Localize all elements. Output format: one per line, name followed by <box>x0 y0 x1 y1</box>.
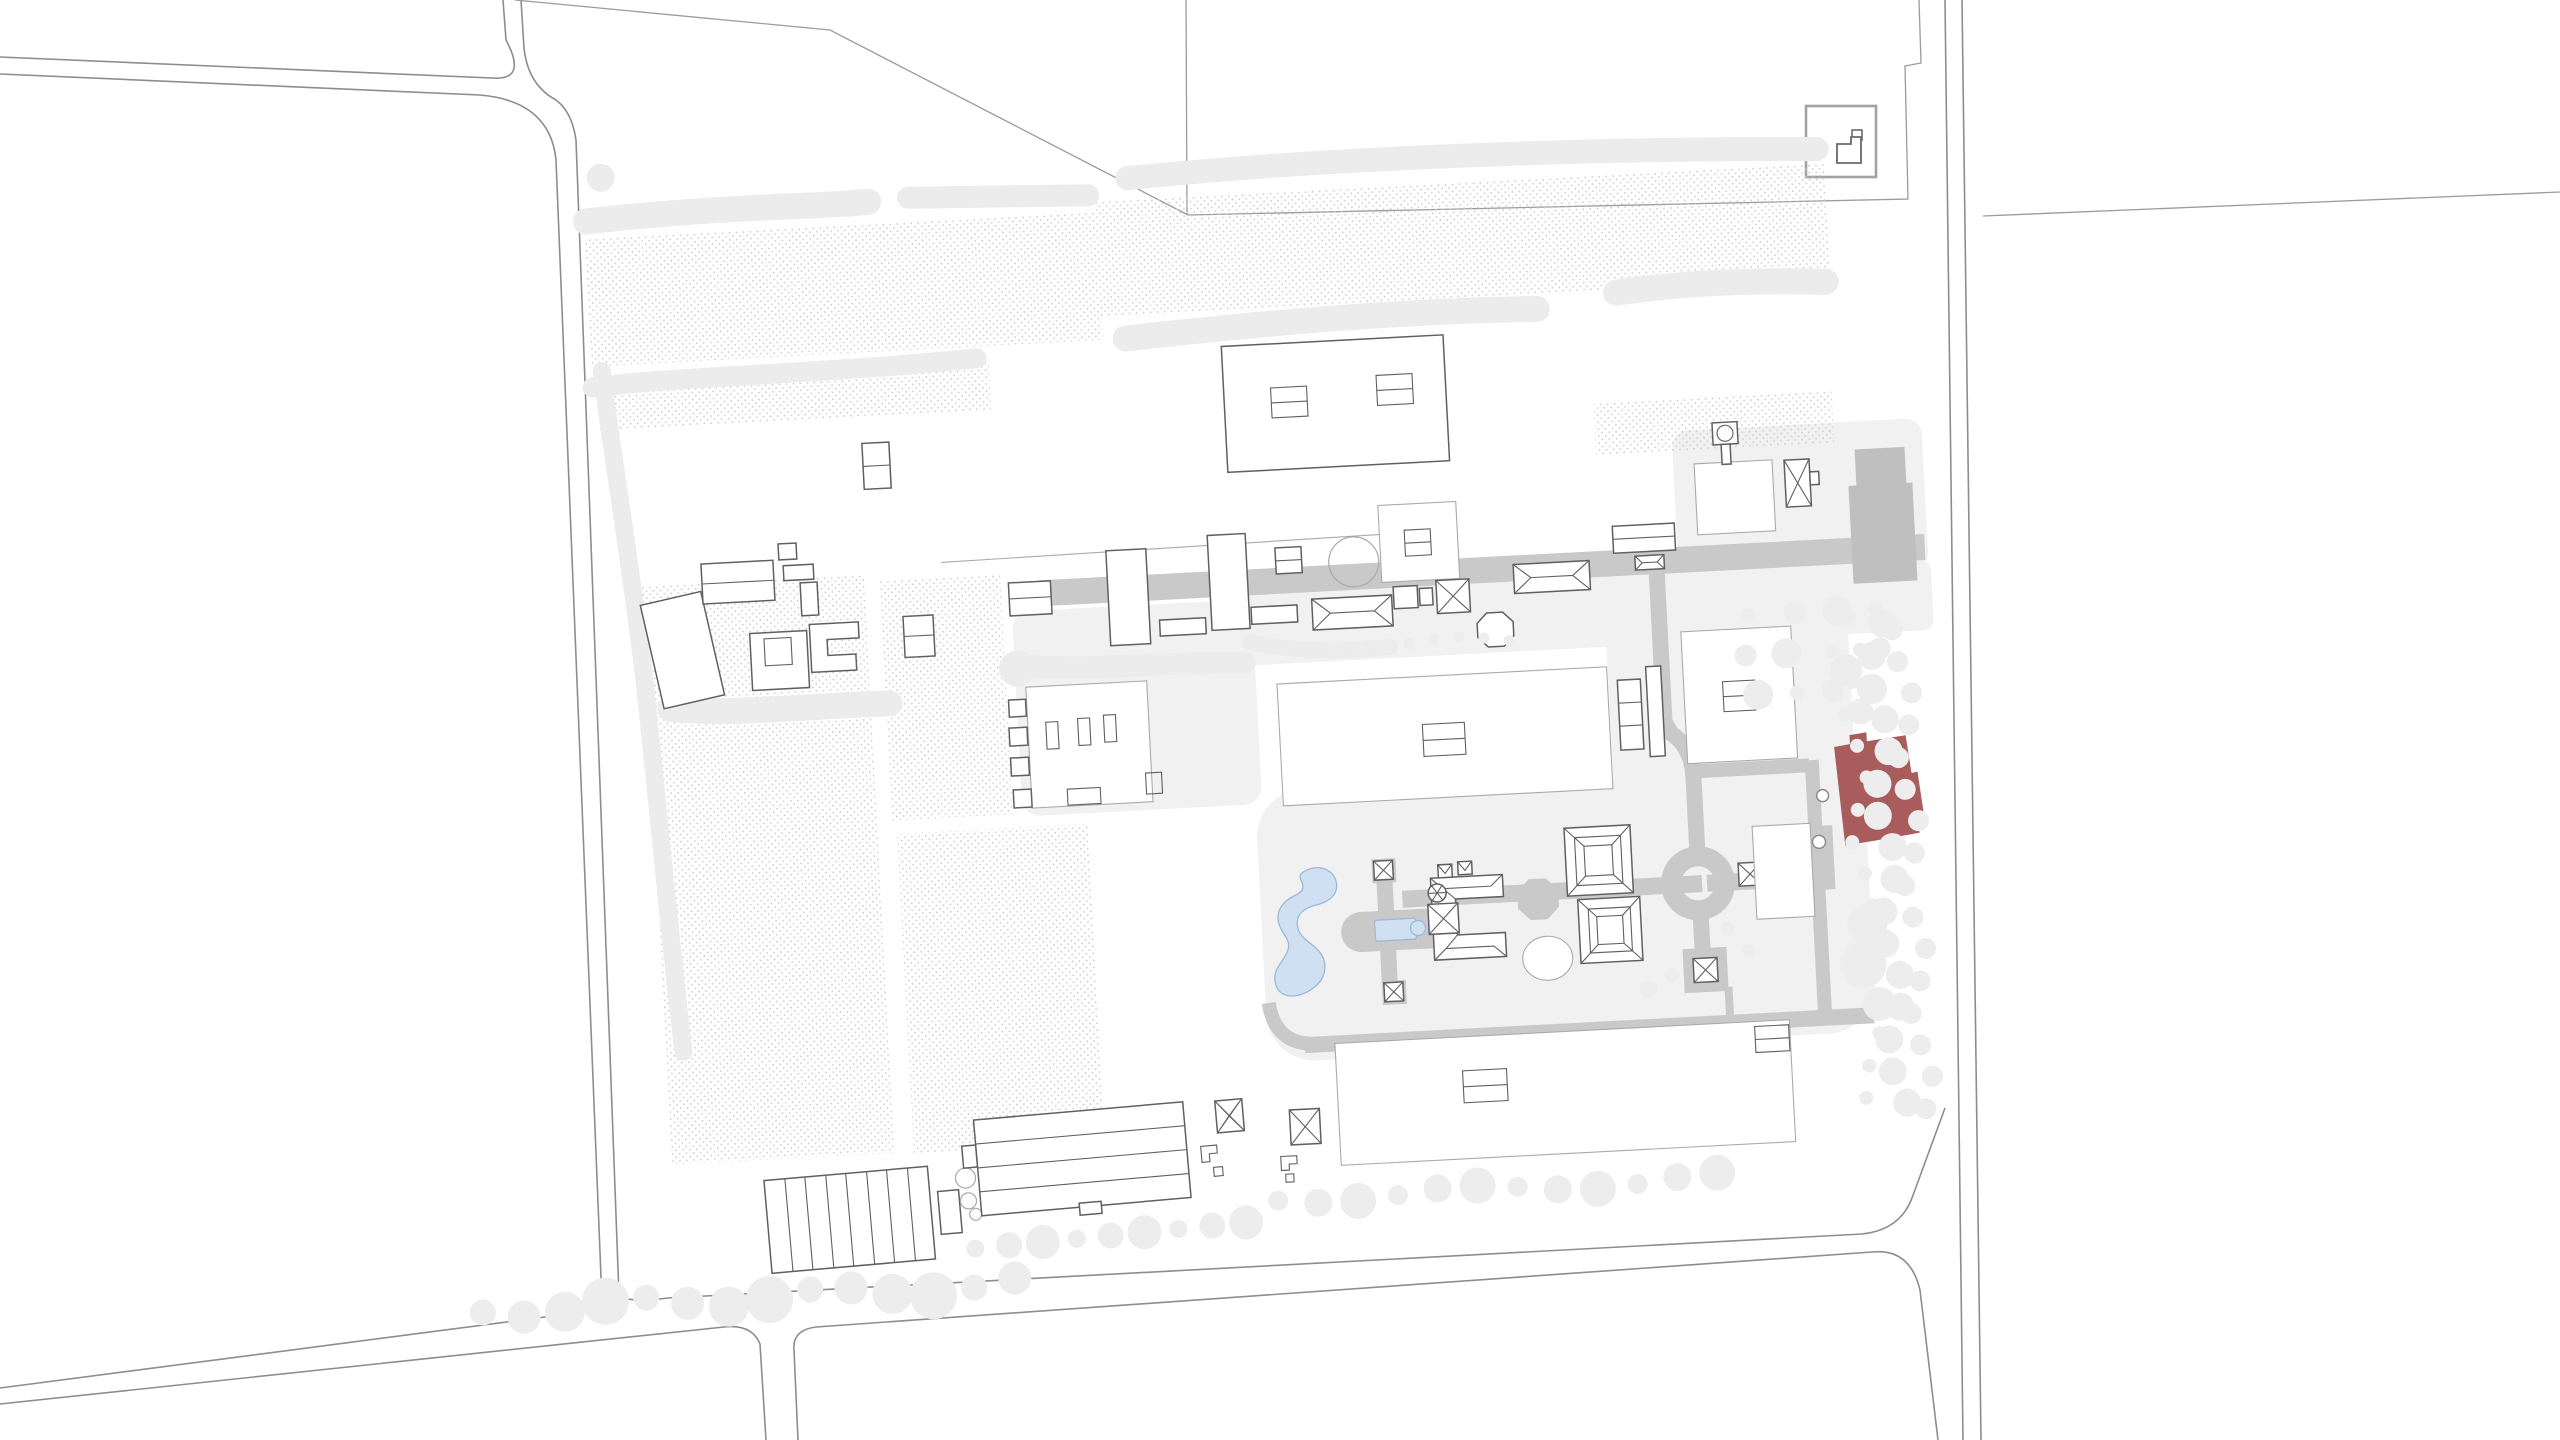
tower-lot <box>1694 460 1776 535</box>
tiny-hip <box>1635 555 1665 570</box>
chimney-lot <box>1378 501 1460 582</box>
terraced-parterre-lower <box>1578 896 1643 963</box>
tree-icon <box>961 1274 988 1301</box>
tree-icon <box>796 1276 823 1303</box>
tree-icon <box>1268 1190 1289 1211</box>
tree-icon <box>995 1232 1022 1259</box>
tree-icon <box>544 1291 586 1333</box>
estate <box>410 95 1967 1343</box>
small-two-row <box>903 615 935 658</box>
long-greenhouse <box>973 1102 1191 1216</box>
courtyard-barn <box>750 631 810 691</box>
road-bottom-south-line-west <box>0 1327 766 1440</box>
road-top-left-north-line <box>0 0 514 78</box>
hip-pavilion-southeast <box>1215 1099 1245 1133</box>
tree-icon <box>1459 1167 1497 1205</box>
road-right-west-line <box>1945 0 1963 1440</box>
tall-building-1 <box>1106 549 1151 646</box>
tree-icon <box>745 1275 794 1324</box>
tree-icon <box>1507 1176 1528 1197</box>
tree-icon <box>909 1271 958 1320</box>
parcel-line-across-road <box>1983 192 2560 216</box>
road-right-east-line <box>1962 0 1981 1440</box>
tree-icon <box>1199 1212 1226 1239</box>
tree-icon <box>1878 1057 1907 1086</box>
parcel-line-diagonal <box>515 0 1188 215</box>
tree-icon <box>507 1300 542 1335</box>
tree-icon <box>997 1261 1032 1296</box>
tree-icon <box>1698 1154 1736 1192</box>
long-two-row-shed <box>701 560 775 604</box>
tree-icon <box>708 1286 750 1328</box>
pool-pavilion-north <box>1373 860 1393 880</box>
tree-icon <box>1898 714 1920 736</box>
farm-lane-edge <box>941 534 1381 562</box>
palace-hex-tower <box>1428 883 1447 902</box>
tree-icon <box>1627 1173 1648 1194</box>
tree-icon <box>1228 1205 1264 1241</box>
terraced-parterre-upper <box>1564 825 1633 896</box>
big-barn <box>1221 335 1449 472</box>
tree-icon <box>1387 1185 1408 1206</box>
small-two-cell-building <box>862 442 891 489</box>
tree-icon <box>1910 1034 1932 1056</box>
tree-icon <box>1886 651 1908 673</box>
tree-icon <box>834 1271 869 1306</box>
site-plan-drawing <box>0 0 2560 1440</box>
tree-icon <box>670 1286 705 1321</box>
gate-knob-1 <box>1816 789 1829 802</box>
hip-roof-building-1 <box>1312 595 1394 630</box>
three-cell-annex <box>1617 679 1644 750</box>
tree-icon <box>1423 1174 1452 1203</box>
tree-icon <box>1902 906 1924 928</box>
tree-icon <box>1900 682 1922 704</box>
tree-icon <box>1862 1058 1877 1073</box>
tree-icon <box>1885 960 1914 989</box>
tree-icon <box>1543 1175 1572 1204</box>
road-top-left-south-line <box>0 74 602 1302</box>
tree-icon <box>581 1277 630 1326</box>
cross-intersection <box>1848 483 1917 584</box>
tree-icon <box>966 1239 985 1258</box>
x-pavilion-west <box>1436 579 1471 614</box>
tree-icon <box>633 1284 660 1311</box>
tree-icon <box>469 1299 496 1326</box>
tree-icon <box>1169 1220 1188 1239</box>
tree-icon <box>1915 937 1937 959</box>
tree-icon <box>1339 1182 1377 1220</box>
tree-icon <box>1663 1162 1692 1191</box>
x-pavilion-southwest <box>1289 1108 1321 1145</box>
walled-courtyard <box>1007 680 1163 809</box>
tall-building-2 <box>1207 534 1250 631</box>
tree-icon <box>1127 1214 1163 1250</box>
gate-knob-2 <box>1812 835 1826 849</box>
tree-icon <box>871 1273 913 1315</box>
palace-x-wing <box>1428 903 1460 935</box>
chimney-building-east <box>1612 523 1675 553</box>
tree-icon <box>1067 1229 1086 1248</box>
chimney-cottage <box>1275 547 1302 574</box>
road-top-left-spur <box>521 0 619 1296</box>
greenhouse-rows <box>764 1166 935 1273</box>
tree-icon <box>1304 1188 1333 1217</box>
tree-icon <box>1921 1065 1943 1087</box>
tree-icon <box>1025 1224 1061 1260</box>
tree-icon <box>1097 1222 1124 1249</box>
tree-icon <box>1859 1090 1874 1105</box>
tree-icon <box>1579 1170 1617 1208</box>
fountain-pavilion <box>1693 957 1718 982</box>
pool-pavilion-south <box>1384 982 1404 1002</box>
site-plan-page <box>0 0 2560 1440</box>
east-garden-lot <box>1752 823 1815 919</box>
tree-icon <box>1870 705 1899 734</box>
tree-icon <box>1903 842 1925 864</box>
hip-roof-building-2 <box>1513 561 1590 594</box>
